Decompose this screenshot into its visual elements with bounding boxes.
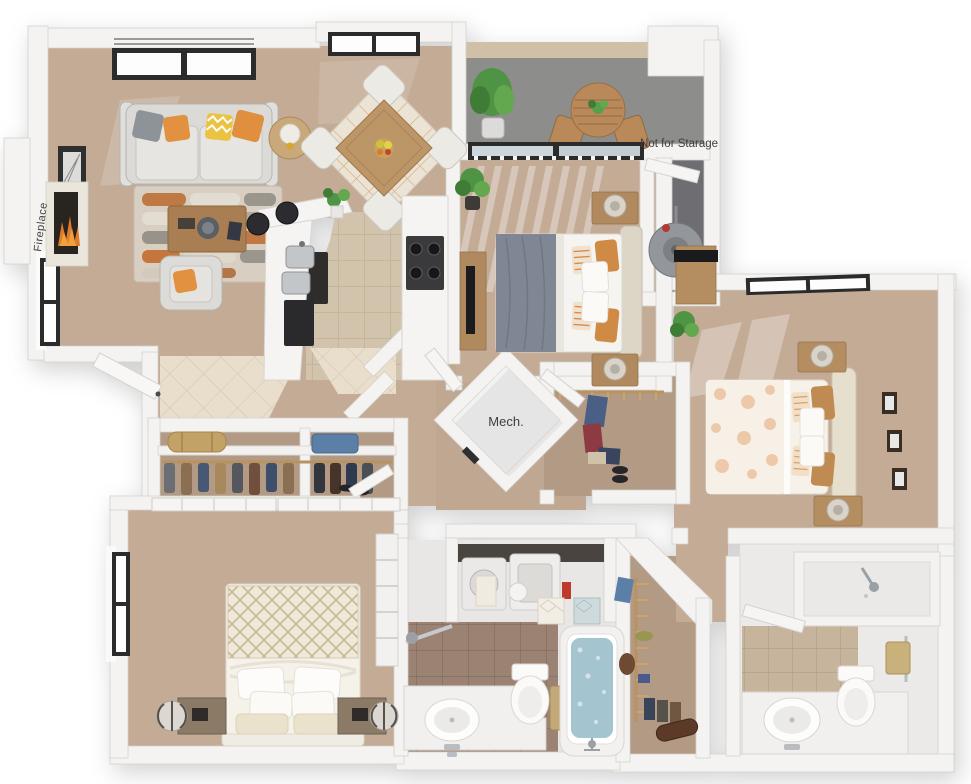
fireplace bbox=[46, 182, 88, 266]
vanity2 bbox=[742, 692, 908, 754]
sofa bbox=[120, 102, 278, 186]
nightstand bbox=[814, 496, 862, 526]
showerhead bbox=[406, 632, 418, 644]
nightstand bbox=[592, 192, 638, 224]
bar-stool bbox=[247, 213, 269, 235]
faucet bbox=[784, 744, 800, 750]
fruit-bowl bbox=[374, 138, 394, 158]
lattice-duvet bbox=[228, 586, 358, 658]
faucet bbox=[444, 744, 460, 750]
toilet2 bbox=[837, 666, 875, 726]
nightstand bbox=[798, 342, 846, 372]
nightstand bbox=[157, 698, 226, 734]
orange-pillow bbox=[162, 114, 190, 142]
headboard bbox=[832, 368, 856, 506]
floor-plan-canvas: Fireplace Not for Starage Mech. bbox=[0, 0, 971, 784]
shower-stall bbox=[794, 552, 940, 626]
floor-plan-svg: Fireplace Not for Starage Mech. bbox=[0, 0, 971, 784]
nightstand bbox=[338, 698, 398, 734]
duffel-bag bbox=[168, 432, 226, 452]
coffee-table bbox=[168, 206, 246, 252]
bathtub bbox=[560, 626, 624, 756]
gray-pillow bbox=[131, 109, 164, 142]
towel bbox=[886, 642, 910, 674]
dining-window bbox=[328, 32, 420, 56]
blue-bag bbox=[312, 434, 358, 453]
armchair bbox=[160, 256, 222, 310]
bedroom3-window bbox=[106, 546, 130, 662]
tv bbox=[674, 250, 718, 262]
chevron-pillow bbox=[205, 113, 234, 142]
sliding-glass-door bbox=[468, 142, 644, 160]
headboard bbox=[620, 226, 642, 358]
basket bbox=[509, 583, 527, 601]
bedroom2-bed bbox=[706, 368, 856, 506]
fireplace-bumpout bbox=[4, 138, 30, 264]
tv bbox=[466, 266, 475, 334]
showerhead bbox=[869, 582, 879, 592]
stove bbox=[406, 236, 444, 290]
dishwasher bbox=[284, 300, 314, 346]
nightstand bbox=[592, 354, 638, 386]
master-dresser-tv bbox=[460, 252, 486, 350]
mech-label: Mech. bbox=[488, 414, 523, 429]
floor-plan: Fireplace Not for Starage Mech. bbox=[4, 22, 956, 772]
tub-water bbox=[571, 638, 613, 738]
shelf-unit bbox=[376, 534, 398, 666]
bag bbox=[619, 653, 635, 675]
master-bed bbox=[496, 226, 642, 358]
bar-stool bbox=[276, 202, 298, 224]
detergent-bottle bbox=[562, 582, 571, 599]
hanging-clothes bbox=[584, 395, 608, 427]
toilet1 bbox=[511, 664, 549, 724]
bedroom2-dresser-tv bbox=[674, 246, 718, 304]
balcony-note-label: Not for Starage bbox=[640, 138, 718, 150]
